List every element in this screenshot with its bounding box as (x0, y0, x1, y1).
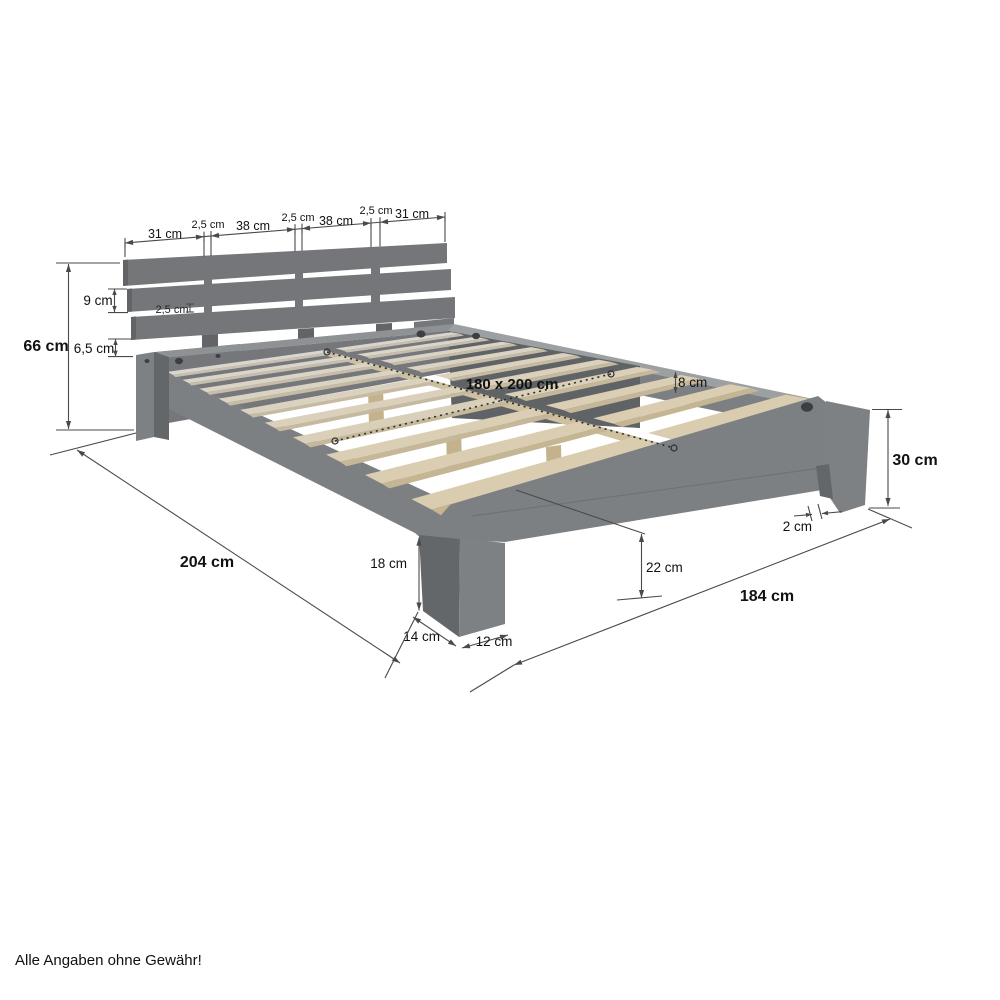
svg-text:31 cm: 31 cm (395, 207, 429, 221)
svg-text:38 cm: 38 cm (319, 214, 353, 228)
svg-text:38 cm: 38 cm (236, 219, 270, 233)
svg-text:184 cm: 184 cm (740, 588, 794, 605)
svg-text:12 cm: 12 cm (476, 634, 513, 649)
svg-text:2,5 cm: 2,5 cm (281, 212, 314, 224)
svg-text:6,5 cm: 6,5 cm (74, 341, 115, 356)
svg-text:9 cm: 9 cm (83, 293, 112, 308)
svg-text:22 cm: 22 cm (646, 560, 683, 575)
svg-text:31 cm: 31 cm (148, 227, 182, 241)
svg-text:180 x 200 cm: 180 x 200 cm (466, 376, 559, 393)
svg-text:2,5 cm: 2,5 cm (191, 219, 224, 231)
svg-text:2,5 cm: 2,5 cm (155, 304, 188, 316)
svg-text:66 cm: 66 cm (23, 338, 68, 355)
svg-text:2 cm: 2 cm (783, 519, 812, 534)
svg-text:204 cm: 204 cm (180, 554, 234, 571)
svg-text:2,5 cm: 2,5 cm (359, 205, 392, 217)
svg-text:Alle Angaben ohne Gewähr!: Alle Angaben ohne Gewähr! (15, 952, 202, 969)
svg-text:8 cm: 8 cm (678, 375, 707, 390)
svg-text:30 cm: 30 cm (892, 452, 937, 469)
svg-text:18 cm: 18 cm (370, 556, 407, 571)
